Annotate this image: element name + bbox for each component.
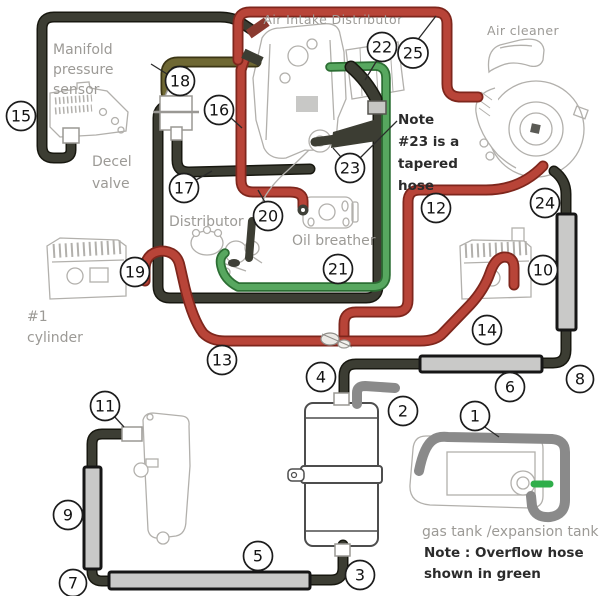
svg-text:14: 14 [477, 321, 497, 340]
callout-22: 22 [368, 33, 397, 62]
callout-4: 4 [307, 363, 336, 392]
label-manifold-1: Manifold [53, 42, 113, 58]
svg-text:17: 17 [174, 179, 194, 198]
callout-7: 7 [60, 570, 87, 596]
svg-text:12: 12 [426, 199, 446, 218]
callout-12: 12 [422, 194, 451, 223]
svg-text:16: 16 [209, 101, 229, 120]
canister-bottom-connector [335, 544, 350, 556]
component-11-connector [122, 427, 142, 441]
note-overflow-line1: Note : Overflow hose [424, 545, 584, 561]
canister-sketch [288, 403, 382, 546]
hose-11-dark [92, 434, 125, 470]
callout-1: 1 [461, 402, 490, 431]
svg-text:2: 2 [398, 402, 408, 421]
svg-text:6: 6 [505, 378, 515, 397]
sleeve-6 [420, 356, 542, 372]
svg-text:5: 5 [253, 547, 263, 566]
svg-text:20: 20 [258, 207, 278, 226]
svg-text:9: 9 [63, 506, 73, 525]
label-decel-2: valve [92, 176, 130, 192]
hose-clamp [368, 101, 386, 114]
label-decel-1: Decel [92, 154, 132, 170]
callout-2: 2 [389, 397, 418, 426]
note-overflow-line2: shown in green [424, 566, 541, 582]
note-23-line4: hose [398, 178, 434, 194]
svg-text:13: 13 [212, 351, 232, 370]
svg-text:3: 3 [355, 566, 365, 585]
callout-14: 14 [473, 316, 502, 345]
sensor-nipple [63, 128, 79, 143]
callout-9: 9 [54, 501, 83, 530]
svg-text:21: 21 [328, 260, 348, 279]
callout-21: 21 [324, 255, 353, 284]
callout-18: 18 [166, 67, 195, 96]
svg-text:8: 8 [575, 370, 585, 389]
callout-10: 10 [529, 256, 558, 285]
hose-2-gray-stub [357, 386, 395, 404]
svg-text:11: 11 [95, 397, 115, 416]
svg-text:24: 24 [535, 194, 555, 213]
canister-top-connector [334, 393, 349, 405]
svg-text:18: 18 [170, 72, 190, 91]
label-manifold-2: pressure [53, 62, 113, 78]
callout-19: 19 [121, 258, 150, 287]
label-cylinder1-2: cylinder [27, 330, 83, 346]
note-23-line1: Note [398, 112, 434, 128]
note-23-line3: tapered [398, 156, 458, 172]
svg-text:4: 4 [316, 368, 326, 387]
callout-24: 24 [531, 189, 560, 218]
sleeve-9 [84, 467, 101, 569]
oil-breather-ring-connector [298, 205, 309, 216]
label-distributor: Distributor [169, 214, 244, 230]
callout-20: 20 [254, 202, 283, 231]
oil-breather-sketch [303, 197, 358, 228]
callout-5: 5 [244, 542, 273, 571]
callout-25: 25 [398, 38, 428, 68]
label-cylinder1-1: #1 [27, 309, 48, 325]
svg-text:25: 25 [403, 44, 423, 63]
label-air-intake-distributor: Air Intake Distributor [263, 12, 403, 27]
callout-11: 11 [91, 392, 120, 421]
callout-3: 3 [346, 561, 375, 590]
label-air-cleaner: Air cleaner [487, 23, 559, 38]
vacuum-hose-routing-diagram: 1 2 3 4 5 6 7 8 9 10 11 12 13 14 15 16 1… [0, 0, 600, 596]
svg-text:15: 15 [11, 107, 31, 126]
label-manifold-3: sensor [53, 82, 100, 98]
svg-text:23: 23 [340, 159, 360, 178]
callout-8: 8 [567, 366, 594, 393]
svg-text:19: 19 [125, 263, 145, 282]
label-gas-tank: gas tank /expansion tank [422, 524, 599, 540]
sleeve-10 [557, 214, 576, 330]
cylinder-1-sketch [47, 238, 126, 299]
callout-13: 13 [208, 346, 237, 375]
label-oil-breather: Oil breather [292, 233, 376, 249]
callout-17: 17 [170, 174, 199, 203]
callout-23: 23 [336, 154, 365, 183]
svg-text:10: 10 [533, 261, 553, 280]
note-23-line2: #23 is a [398, 134, 459, 150]
callout-6: 6 [496, 373, 525, 402]
svg-text:22: 22 [372, 38, 392, 57]
svg-text:1: 1 [470, 407, 480, 426]
air-cleaner-sketch [476, 39, 588, 177]
callout-16: 16 [205, 96, 234, 125]
callout-15: 15 [7, 102, 36, 131]
diagram-canvas: 1 2 3 4 5 6 7 8 9 10 11 12 13 14 15 16 1… [0, 0, 600, 596]
hose-8-dark [542, 326, 566, 363]
sleeve-5 [109, 572, 310, 589]
svg-text:7: 7 [68, 574, 78, 593]
